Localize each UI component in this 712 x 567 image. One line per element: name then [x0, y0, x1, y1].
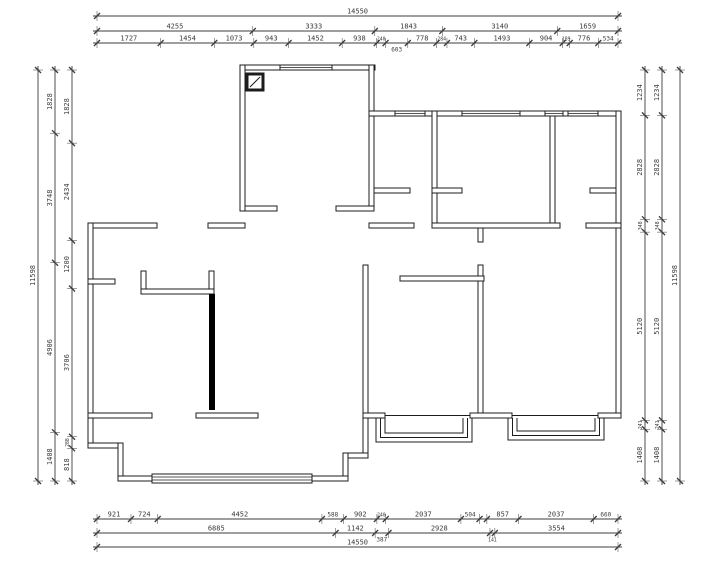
bay-window [508, 418, 604, 440]
wall-segment [118, 443, 123, 481]
dimension-label: 11598 [671, 265, 679, 286]
dimension-label: 1200 [63, 256, 71, 273]
wall-segment [363, 265, 368, 458]
wall-segment [369, 65, 374, 211]
dimension-label: 1828 [63, 98, 71, 115]
dimension-label: 2828 [636, 159, 644, 176]
dimension-label: 778 [416, 35, 429, 43]
dimension-label: 189 [562, 37, 571, 43]
wall-segment [470, 413, 512, 418]
dimension-label: 904 [540, 35, 553, 43]
wall-segment [432, 111, 437, 228]
dimension-label: 3706 [63, 354, 71, 371]
shear-wall [209, 294, 215, 410]
dimension-label: 1452 [307, 35, 324, 43]
floor-plan-page: 1455042553333184331401659172714541073943… [0, 0, 712, 567]
dimension-label: 240 [377, 37, 386, 43]
wall-segment [586, 223, 621, 228]
dimension-label: 3333 [305, 23, 322, 31]
wall-segment [432, 188, 462, 193]
wall-segment [208, 223, 245, 228]
dimension-label: 288 [65, 438, 71, 447]
wall-segment [336, 206, 374, 211]
dimension-label: 660 [600, 512, 611, 519]
dimension-label: 1408 [46, 448, 54, 465]
wall-segment [88, 413, 152, 418]
sliding-door [152, 474, 312, 483]
dimension-label: 743 [454, 35, 467, 43]
dimension-label: 1408 [636, 447, 644, 464]
wall-segment [196, 413, 258, 418]
dimension-label: 1234 [653, 84, 661, 101]
bay-window [381, 418, 468, 438]
dimension-label: 1073 [226, 35, 243, 43]
dimension-label: 4255 [166, 23, 183, 31]
dimension-label: 3748 [46, 190, 54, 207]
wall-segment [550, 111, 555, 228]
dim-chain: 1234282834851202411408 [653, 66, 667, 485]
dimension-label: 11598 [29, 265, 37, 286]
dimension-label: 1727 [120, 35, 137, 43]
dim-chain: 1828243412003706288818 [63, 66, 77, 485]
dimension-label: 14550 [347, 539, 368, 547]
wall-segment [590, 188, 616, 193]
dimension-label: 938 [353, 35, 366, 43]
wall-segment [478, 265, 483, 418]
dim-chain: 1234282834851202411408 [636, 66, 650, 485]
dimension-label: 348 [638, 221, 644, 230]
dimension-label: 921 [108, 511, 121, 519]
wall-segment [374, 188, 410, 193]
dimension-label: 504 [465, 512, 476, 519]
dimension-label: 1142 [347, 525, 364, 533]
dimension-label: 1828 [46, 93, 54, 110]
dimension-label: 943 [265, 35, 278, 43]
dim-chain: 921724445258890224020375048572037660 [93, 511, 622, 525]
dimension-label: 1454 [179, 35, 196, 43]
dim-chain: 1828374849061408 [46, 66, 60, 485]
dimension-label: 818 [63, 458, 71, 471]
dimension-label: 1843 [400, 23, 417, 31]
dimension-label: 588 [327, 512, 338, 519]
dimension-label: 1234 [636, 84, 644, 101]
wall-segment [240, 65, 245, 211]
dimension-label: 1659 [579, 23, 596, 31]
wall-segment [616, 111, 621, 418]
wall-segment [363, 413, 385, 418]
bay-window [376, 418, 472, 442]
dimension-label: 240 [377, 513, 386, 519]
dimension-label: 4906 [46, 339, 54, 356]
wall-segment [432, 223, 560, 228]
bay-window [513, 418, 600, 436]
dimension-label: 2037 [548, 511, 565, 519]
dimension-label: 2928 [431, 525, 448, 533]
wall-segment [245, 206, 277, 211]
dim-chain: 14550 [93, 539, 622, 553]
wall-segment [369, 223, 414, 228]
dimension-label: 14550 [347, 8, 368, 16]
dimension-label: 3554 [548, 525, 565, 533]
dimension-label: 902 [354, 511, 367, 519]
dimension-label: 4452 [231, 511, 248, 519]
dimension-label: 241 [655, 420, 661, 429]
dimension-label: 348 [655, 221, 661, 230]
dimension-label: 3140 [491, 23, 508, 31]
dimension-label: 5120 [636, 318, 644, 335]
wall-segment [598, 413, 621, 418]
dimension-label: 1408 [653, 447, 661, 464]
dimension-label: 5120 [653, 318, 661, 335]
dim-chain: 1727145410739431452938240603778284743149… [93, 35, 622, 54]
wall-segment [141, 289, 214, 294]
dim-chain: 14550 [93, 8, 622, 22]
dimension-label: 6885 [208, 525, 225, 533]
bay-window [385, 418, 463, 433]
floor-plan-drawing: 1455042553333184331401659172714541073943… [0, 0, 712, 567]
dimension-label: 284 [437, 37, 446, 43]
dim-chain: 11598 [29, 66, 43, 485]
dimension-label: 857 [496, 511, 509, 519]
dimension-label: 1493 [493, 35, 510, 43]
dimension-label: 534 [603, 36, 614, 43]
dimension-label: 603 [391, 47, 402, 54]
dimension-label: 776 [578, 35, 591, 43]
dimension-label: 2828 [653, 159, 661, 176]
dimension-label: 2434 [63, 183, 71, 200]
wall-segment [88, 223, 157, 228]
dimension-label: 141 [488, 538, 497, 544]
wall-segment [478, 228, 483, 242]
dimension-label: 2037 [415, 511, 432, 519]
dimension-label: 387 [376, 537, 387, 544]
wall-segment [88, 279, 115, 284]
bay-window [517, 418, 595, 431]
dimension-label: 724 [138, 511, 151, 519]
wall-segment [400, 276, 484, 281]
dim-chain: 11598 [671, 66, 685, 485]
dimension-label: 241 [638, 420, 644, 429]
